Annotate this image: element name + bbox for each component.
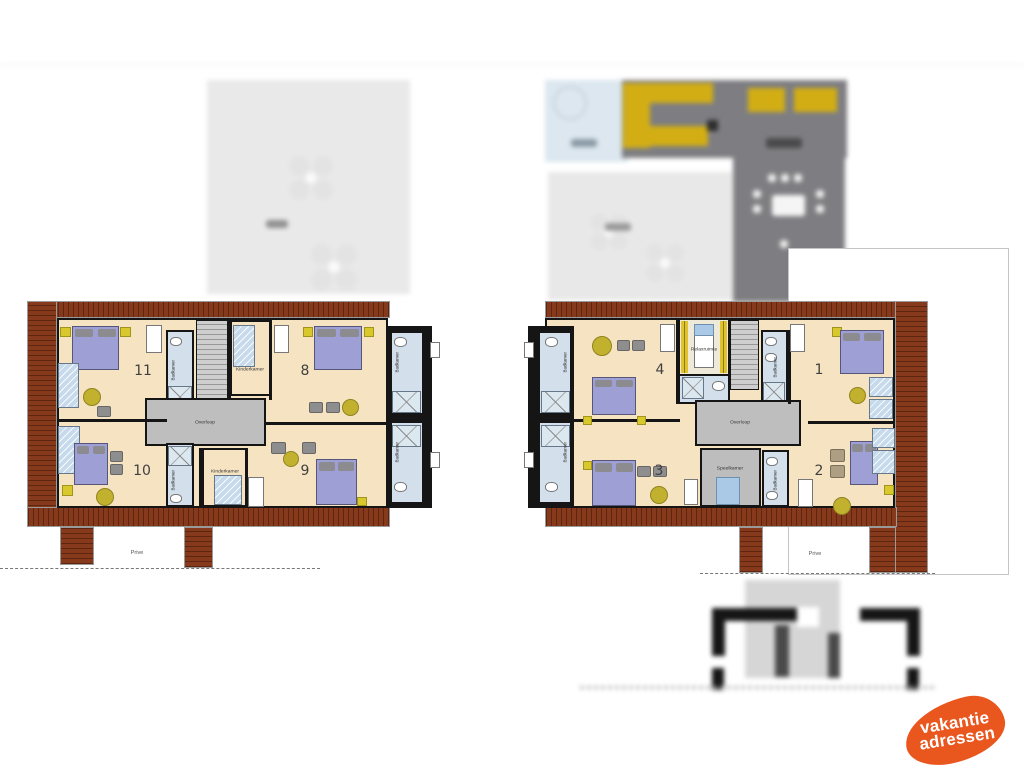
roof-band xyxy=(27,301,57,527)
toilet xyxy=(394,337,407,347)
boundary-dashed-line xyxy=(700,573,935,574)
chimney xyxy=(184,527,213,568)
chair xyxy=(309,402,323,413)
toilet xyxy=(170,494,182,503)
plant-symbol xyxy=(645,243,685,283)
round-table xyxy=(833,497,851,515)
floor-plan-page: { "left_plan": { "rooms": [ {"number": "… xyxy=(0,0,1024,768)
bathroom-label: Badkamer xyxy=(170,469,176,491)
shower xyxy=(763,382,785,402)
bathroom-label: Badkamer xyxy=(170,358,176,383)
chair xyxy=(110,464,123,475)
chair-dot xyxy=(781,174,789,182)
bathroom-label: Badkamer xyxy=(562,350,568,375)
chair xyxy=(302,442,316,454)
nightstand xyxy=(62,485,73,496)
kitchen-counter xyxy=(650,126,708,146)
double-bed xyxy=(592,460,636,506)
chair xyxy=(830,449,845,462)
round-table xyxy=(96,488,114,506)
round-table xyxy=(592,336,612,356)
room-4-number: 4 xyxy=(652,362,668,378)
wall xyxy=(199,448,202,507)
chair xyxy=(617,340,630,351)
washbasin-unit xyxy=(274,325,289,353)
chair-dot xyxy=(768,174,776,182)
kids-room-label: Kinderkamer xyxy=(231,366,270,372)
terrace-area xyxy=(548,172,732,300)
window-bump xyxy=(430,452,440,468)
boundary-dashed-line xyxy=(0,568,320,569)
wall-segment xyxy=(775,625,789,677)
chimney xyxy=(739,527,763,573)
stairs xyxy=(196,320,228,400)
bunk-bed xyxy=(233,325,255,367)
roof-band xyxy=(32,301,390,318)
fine-print-line xyxy=(580,686,935,689)
dining-table xyxy=(772,195,805,216)
toilet xyxy=(170,337,182,346)
nightstand xyxy=(357,497,367,506)
logo-text: vakantie adressen xyxy=(893,687,1019,774)
sink xyxy=(766,457,778,466)
nightstand xyxy=(364,327,374,337)
double-bed xyxy=(840,330,884,374)
nightstand xyxy=(884,485,894,495)
round-table xyxy=(83,388,101,406)
chimney xyxy=(60,527,94,565)
chair-dot xyxy=(780,240,788,248)
terrace-label-blur xyxy=(605,223,631,231)
bathroom-label: Badkamer xyxy=(394,350,400,375)
nightstand xyxy=(303,327,313,337)
lounger-pillow xyxy=(694,324,714,336)
plant-symbol xyxy=(288,155,334,201)
wall-segment xyxy=(828,633,840,678)
sink xyxy=(712,381,725,391)
nightstand xyxy=(120,327,131,337)
bathroom-label: Badkamer xyxy=(772,356,778,378)
nightstand xyxy=(60,327,71,337)
wall xyxy=(808,421,895,424)
wall xyxy=(266,422,388,425)
private-area-label: Prive xyxy=(125,549,150,555)
single-bed xyxy=(869,377,893,397)
plant-symbol xyxy=(310,243,358,291)
window-bump xyxy=(524,452,534,468)
wall-outline xyxy=(712,608,725,656)
bunk-bed xyxy=(214,475,242,505)
roof-band xyxy=(27,507,390,527)
shower xyxy=(541,391,570,413)
roof-band xyxy=(895,301,928,573)
page-edge-line xyxy=(0,64,1024,65)
chair xyxy=(326,402,340,413)
kids-room-label: Kinderkamer xyxy=(206,468,245,474)
sauna-bench-wall xyxy=(720,321,727,373)
play-room-label: Speelkamer xyxy=(711,465,750,471)
stair-strip xyxy=(745,580,840,678)
round-table xyxy=(342,399,359,416)
hot-tub-circle xyxy=(553,86,587,120)
cabinet-unit xyxy=(248,477,264,507)
washbasin-unit xyxy=(660,324,675,352)
bathroom-label: Badkamer xyxy=(772,469,778,491)
hallway-label: Overloop xyxy=(718,419,762,425)
washbasin-unit xyxy=(684,479,698,505)
chair xyxy=(97,406,111,417)
bathroom-label: Badkamer xyxy=(394,440,400,465)
round-table xyxy=(650,486,668,504)
nightstand xyxy=(583,461,592,470)
single-bed xyxy=(58,363,79,408)
washbasin-unit xyxy=(798,479,813,507)
room-11-number: 11 xyxy=(128,363,158,379)
round-table xyxy=(849,387,866,404)
plant-symbol xyxy=(590,213,628,251)
double-bed xyxy=(74,443,108,485)
double-bed xyxy=(592,377,636,415)
chair-dot xyxy=(816,205,824,213)
shower xyxy=(168,446,192,466)
toilet xyxy=(545,482,558,492)
toilet xyxy=(545,337,558,347)
toilet xyxy=(765,337,777,346)
sauna-bench-wall xyxy=(681,321,688,373)
single-bed xyxy=(872,428,895,448)
landing-square xyxy=(797,607,819,627)
shower xyxy=(682,377,704,399)
room-10-number: 10 xyxy=(127,463,157,479)
nightstand xyxy=(583,416,592,425)
double-bed xyxy=(72,326,119,370)
double-bed xyxy=(314,326,362,370)
wall xyxy=(545,419,680,422)
stairs xyxy=(730,320,759,390)
kitchen-counter xyxy=(623,103,650,148)
room-2-number: 2 xyxy=(812,463,826,479)
wall xyxy=(228,320,231,400)
vakantieadressen-logo: vakantie adressen xyxy=(898,696,1014,766)
wall-outline xyxy=(907,608,920,656)
toilet xyxy=(394,482,407,492)
chair xyxy=(830,465,845,478)
wall xyxy=(269,320,272,400)
chair xyxy=(637,466,651,477)
room-1-number: 1 xyxy=(812,362,826,378)
double-bed xyxy=(316,459,357,505)
room-label-blur xyxy=(571,139,597,147)
bathroom-label: Badkamer xyxy=(562,440,568,465)
private-area-label: Prive xyxy=(803,550,828,556)
chair xyxy=(271,442,286,454)
hallway-label: Overloop xyxy=(183,419,227,425)
shower xyxy=(392,391,421,413)
kitchen-counter xyxy=(623,83,713,103)
chimney xyxy=(869,527,896,573)
chair-dot xyxy=(794,174,802,182)
chair-dot xyxy=(753,205,761,213)
chair-dot xyxy=(816,190,824,198)
chair xyxy=(632,340,645,351)
single-bed xyxy=(869,399,893,419)
room-label-blur xyxy=(766,138,802,148)
kitchen-counter xyxy=(748,88,785,112)
nightstand xyxy=(637,416,646,425)
window-bump xyxy=(430,342,440,358)
wall xyxy=(57,419,167,422)
relax-room-label: Relaxruimte xyxy=(689,346,720,352)
chair-dot xyxy=(753,190,761,198)
washbasin-unit xyxy=(790,324,805,352)
play-mat xyxy=(716,477,740,505)
single-bed xyxy=(872,450,895,474)
terrace-label-blur xyxy=(266,220,288,228)
roof-band xyxy=(545,301,897,318)
window-bump xyxy=(524,342,534,358)
room-3-number: 3 xyxy=(652,463,666,479)
wall xyxy=(676,320,679,404)
washbasin-unit xyxy=(146,325,162,353)
stove-mark xyxy=(707,120,718,131)
room-9-number: 9 xyxy=(294,463,316,479)
kitchen-counter xyxy=(794,88,837,112)
room-8-number: 8 xyxy=(294,363,316,379)
chair xyxy=(110,451,123,462)
toilet xyxy=(766,491,778,500)
